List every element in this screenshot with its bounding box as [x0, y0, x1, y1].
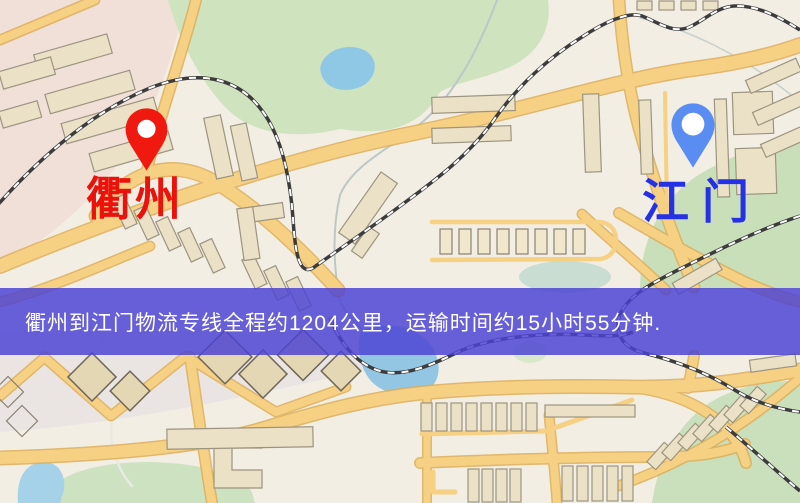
map-canvas: [0, 0, 800, 503]
destination-pin-icon: [663, 101, 723, 170]
route-info-text: 衢州到江门物流专线全程约1204公里，运输时间约15小时55分钟.: [0, 307, 661, 337]
origin-label: 衢州: [86, 176, 184, 222]
origin-pin-body: [126, 108, 168, 170]
map-screenshot: 衢州 江门 衢州到江门物流专线全程约1204公里，运输时间约15小时55分钟.: [0, 0, 800, 503]
route-info-banner: 衢州到江门物流专线全程约1204公里，运输时间约15小时55分钟.: [0, 288, 800, 355]
destination-label: 江门: [642, 178, 762, 225]
origin-pin-icon: [121, 106, 172, 173]
